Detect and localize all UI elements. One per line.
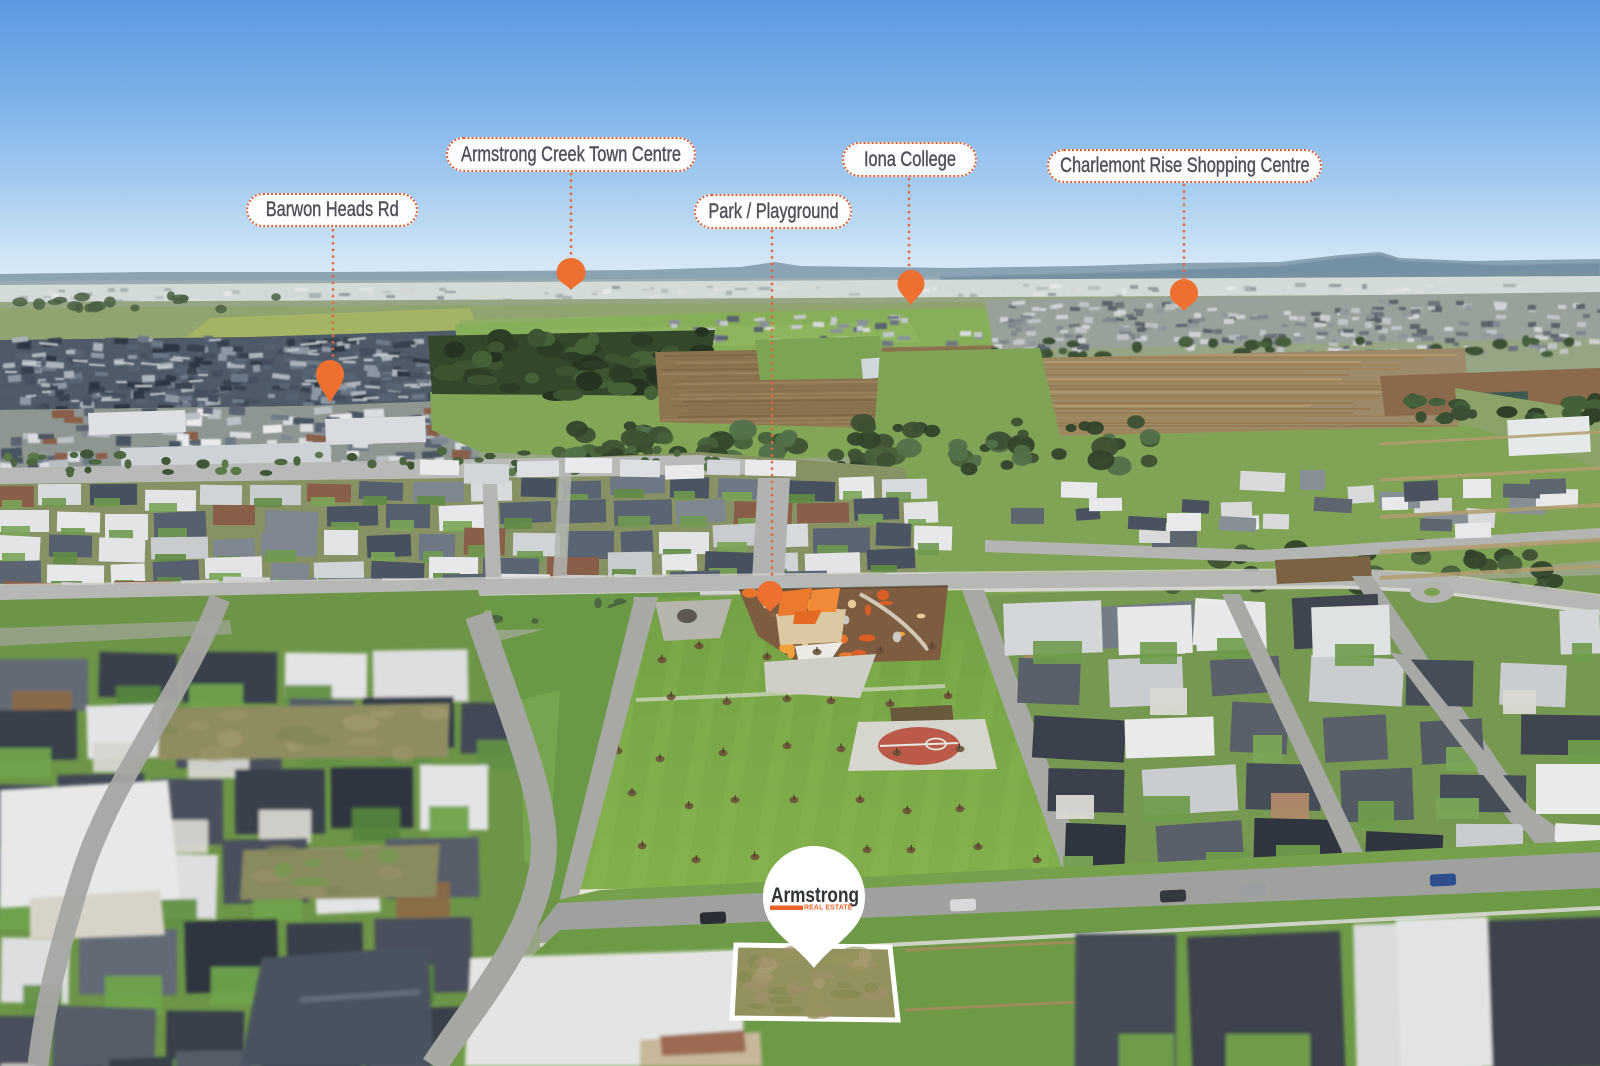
svg-text:REAL ESTATE: REAL ESTATE <box>804 905 853 912</box>
